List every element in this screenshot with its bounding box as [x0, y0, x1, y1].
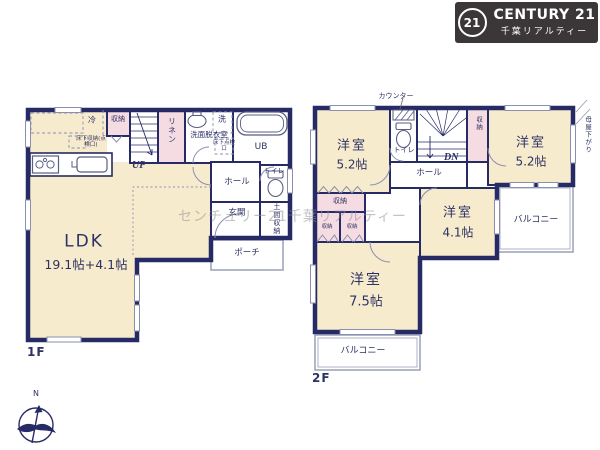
label-stairs-down: DN	[444, 152, 458, 163]
label-underfloor-hatch: 床下点検口	[212, 140, 236, 152]
label-room-sw-name: 洋室	[350, 273, 382, 289]
label-washroom: 洗面脱衣室	[190, 131, 228, 139]
label-stairs-up: UP	[132, 160, 145, 171]
label-room-center-size: 4.1帖	[442, 226, 473, 239]
toilet-icon-2f	[396, 123, 411, 148]
bathtub-icon	[237, 112, 287, 135]
label-toilet-1f: トイレ	[264, 168, 285, 176]
label-toilet-2f: トイレ	[394, 147, 415, 155]
label-bath-ub: UB	[255, 142, 268, 152]
century21-badge-icon: 21	[458, 8, 487, 37]
logo-subtitle: 千葉リアルティー	[494, 24, 596, 37]
label-balcony-south: バルコニー	[341, 346, 386, 356]
label-underfloor-storage: 床下収納(点検口)	[74, 136, 108, 148]
logo-badge-number: 21	[464, 16, 481, 30]
century21-logo: 21 CENTURY 21 千葉リアルティー	[455, 2, 598, 43]
label-sloped-ceiling: 母屋下がり	[583, 116, 590, 154]
label-porch: ポーチ	[234, 249, 260, 259]
label-ldk-size: 19.1帖+4.1帖	[44, 258, 127, 272]
logo-brand: CENTURY 21	[494, 8, 596, 23]
label-floor1: 1F	[27, 346, 46, 359]
label-balcony-east: バルコニー	[514, 215, 559, 225]
sink-icon	[77, 157, 107, 172]
kitchen-counter-icon	[30, 153, 112, 176]
stairs-1f-room	[130, 110, 158, 163]
compass-bird-shape	[17, 424, 56, 433]
label-room-nw-size: 5.2帖	[336, 158, 367, 171]
logo-text-block: CENTURY 21 千葉リアルティー	[494, 8, 596, 37]
label-closet-stair: 収納	[474, 116, 481, 131]
label-room-center-name: 洋室	[443, 207, 473, 222]
label-counter: カウンター	[379, 93, 414, 101]
label-linen: リネン	[167, 117, 176, 144]
floorplan-page: 21 CENTURY 21 千葉リアルティー	[0, 0, 600, 450]
watermark: センチュリー21千葉リアルティー	[178, 206, 407, 226]
label-hall-1f: ホール	[224, 178, 250, 188]
label-washer: 洗	[218, 116, 226, 125]
label-closet-1f: 収納	[111, 116, 125, 124]
label-room-sw-size: 7.5帖	[349, 296, 383, 311]
label-hall-2f: ホール	[416, 169, 442, 179]
label-room-ne-size: 5.2帖	[515, 155, 546, 168]
label-compass-north: N	[33, 390, 39, 399]
label-room-nw-name: 洋室	[337, 140, 367, 155]
label-room-ne-name: 洋室	[516, 137, 546, 152]
label-floor2: 2F	[312, 372, 331, 385]
room-center	[420, 188, 497, 258]
label-ldk-name: LDK	[64, 232, 104, 251]
compass-icon	[12, 392, 60, 448]
label-fridge: 冷	[88, 117, 96, 126]
label-closet-north: 収納	[333, 198, 347, 206]
